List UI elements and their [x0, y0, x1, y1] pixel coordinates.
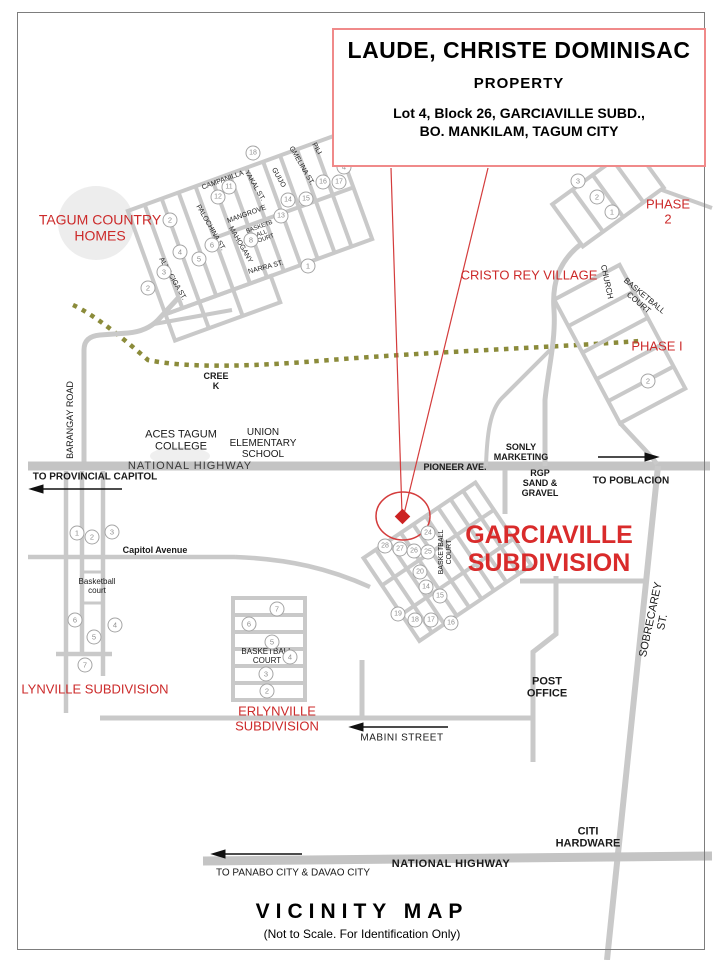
block-number-5: 5	[192, 252, 207, 267]
label-sonly-marketing: SONLY MARKETING	[494, 442, 549, 462]
block-number-5: 5	[265, 635, 280, 650]
block-number-27: 27	[393, 542, 408, 557]
block-number-28: 28	[378, 539, 393, 554]
block-number-25: 25	[421, 545, 436, 560]
vicinity-map-title: VICINITY MAP	[256, 900, 469, 924]
block-number-1: 1	[605, 205, 620, 220]
label-garciaville-basketball-court: BASKETBALL COURT	[438, 530, 454, 575]
block-number-5: 5	[87, 630, 102, 645]
block-number-3: 3	[157, 265, 172, 280]
block-number-1: 1	[70, 526, 85, 541]
block-number-13: 13	[274, 209, 289, 224]
label-aces-tagum-college: ACES TAGUM COLLEGE	[145, 429, 217, 454]
vicinity-map-canvas: NATIONAL HIGHWAYPIONEER AVE.SONLY MARKET…	[0, 0, 720, 960]
block-number-2: 2	[141, 281, 156, 296]
block-number-1: 1	[301, 259, 316, 274]
label-tagum-country-homes: TAGUM COUNTRY HOMES	[39, 212, 161, 243]
block-number-2: 2	[163, 213, 178, 228]
block-number-3: 3	[571, 174, 586, 189]
block-number-2: 2	[85, 530, 100, 545]
block-number-3: 3	[105, 525, 120, 540]
block-number-26: 26	[407, 544, 422, 559]
block-number-3: 3	[259, 667, 274, 682]
block-number-20: 20	[413, 565, 428, 580]
block-number-7: 7	[78, 658, 93, 673]
label-phase-2: PHASE 2	[642, 197, 694, 226]
label-post-office: POST OFFICE	[527, 676, 567, 701]
block-number-17: 17	[332, 175, 347, 190]
label-rgp-sand-gravel: RGP SAND & GRAVEL	[522, 468, 559, 498]
block-number-14: 14	[281, 193, 296, 208]
label-barangay-road: BARANGAY ROAD	[65, 381, 75, 459]
block-number-6: 6	[242, 617, 257, 632]
label-pioneer-ave: PIONEER AVE.	[423, 462, 486, 472]
label-creek: CREE K	[203, 371, 228, 391]
vicinity-map-subtitle: (Not to Scale. For Identification Only)	[256, 927, 469, 941]
block-number-16: 16	[444, 616, 459, 631]
label-phase-1: PHASE I	[631, 340, 682, 355]
block-number-17: 17	[424, 613, 439, 628]
block-number-4: 4	[173, 245, 188, 260]
property-kind: PROPERTY	[334, 75, 704, 92]
label-to-poblacion: TO POBLACION	[593, 475, 669, 486]
property-owner: LAUDE, CHRISTE DOMINISAC	[334, 37, 704, 64]
label-cristo-rey-village: CRISTO REY VILLAGE	[461, 269, 598, 284]
label-to-panabo-davao: TO PANABO CITY & DAVAO CITY	[216, 867, 370, 878]
block-number-8: 8	[244, 233, 259, 248]
block-number-4: 4	[108, 618, 123, 633]
property-address-line2: BO. MANKILAM, TAGUM CITY	[334, 123, 704, 141]
label-lynville-basketball-court: Basketball court	[79, 578, 116, 596]
label-lynville-subdivision: LYNVILLE SUBDIVISION	[21, 683, 168, 698]
label-to-provincial-capitol: TO PROVINCIAL CAPITOL	[33, 471, 157, 482]
block-number-2: 2	[590, 190, 605, 205]
block-number-6: 6	[68, 613, 83, 628]
label-mabini-street: MABINI STREET	[360, 732, 443, 743]
label-national-highway-lower: NATIONAL HIGHWAY	[392, 858, 510, 870]
block-number-7: 7	[270, 602, 285, 617]
block-number-15: 15	[433, 589, 448, 604]
block-number-18: 18	[246, 146, 261, 161]
block-number-19: 19	[391, 607, 406, 622]
block-number-14: 14	[419, 580, 434, 595]
block-number-18: 18	[408, 613, 423, 628]
block-number-2: 2	[641, 374, 656, 389]
block-number-11: 11	[222, 180, 237, 195]
property-title-box: LAUDE, CHRISTE DOMINISAC PROPERTY Lot 4,…	[332, 28, 706, 167]
block-number-4: 4	[283, 650, 298, 665]
block-number-15: 15	[299, 192, 314, 207]
label-erlynville-subdivision: ERLYNVILLE SUBDIVISION	[235, 704, 319, 733]
label-capitol-avenue: Capitol Avenue	[123, 545, 188, 555]
property-address-line1: Lot 4, Block 26, GARCIAVILLE SUBD.,	[334, 105, 704, 123]
block-number-2: 2	[260, 684, 275, 699]
block-number-6: 6	[205, 238, 220, 253]
map-footer: VICINITY MAP (Not to Scale. For Identifi…	[256, 900, 469, 941]
block-number-24: 24	[421, 526, 436, 541]
label-citi-hardware: CITI HARDWARE	[556, 826, 621, 851]
label-garciaville-subdivision: GARCIAVILLE SUBDIVISION	[465, 521, 633, 577]
block-number-16: 16	[316, 175, 331, 190]
label-national-highway-upper: NATIONAL HIGHWAY	[128, 460, 252, 472]
label-union-elementary-school: UNION ELEMENTARY SCHOOL	[230, 427, 297, 461]
